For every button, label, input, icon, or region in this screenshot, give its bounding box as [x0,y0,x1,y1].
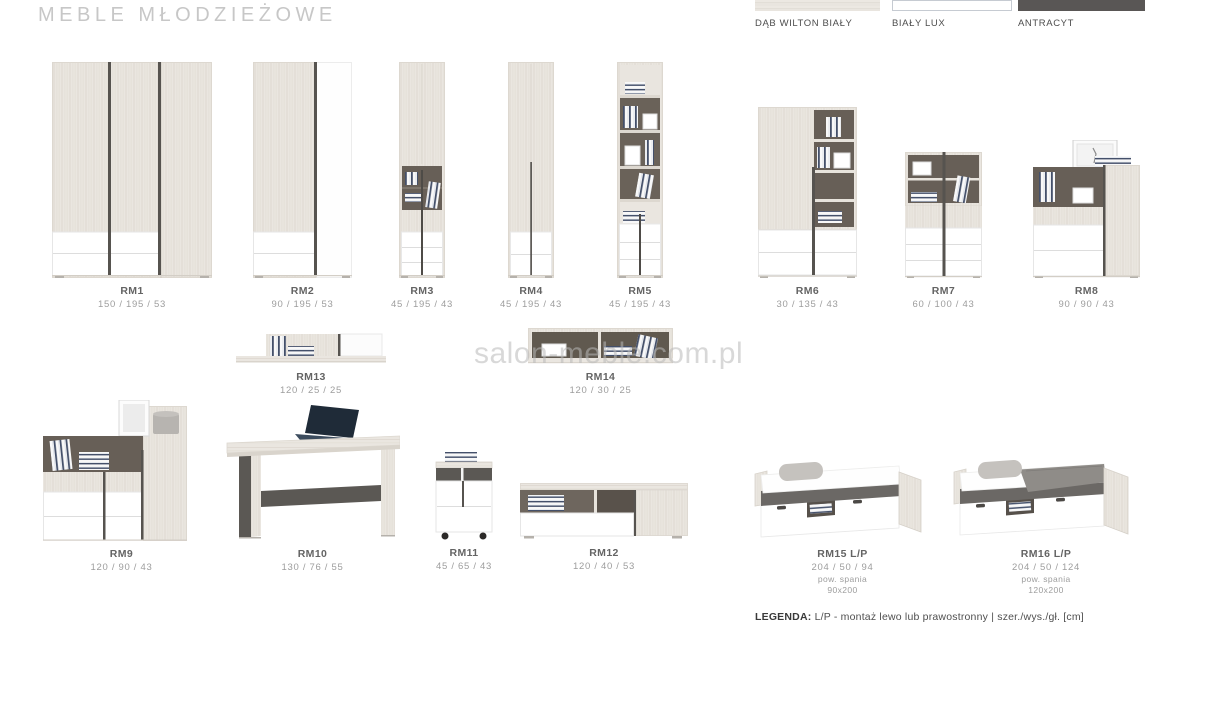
product-rm3: RM3 45 / 195 / 43 [399,62,445,311]
product-dims: 45 / 65 / 43 [436,560,492,573]
product-rm12: RM12 120 / 40 / 53 [520,483,688,573]
product-code: RM7 [913,285,975,298]
swatch-label: ANTRACYT [1018,18,1145,29]
product-image-rm10-desk [225,405,400,541]
product-image-rm9-chest [43,400,200,541]
product-image-rm3-cabinet [399,62,445,278]
product-code: RM5 [609,285,671,298]
product-code: RM1 [98,285,166,298]
product-dims: 45 / 195 / 43 [609,298,671,311]
product-code: RM12 [573,547,635,560]
product-image-rm1-wardrobe [52,62,212,278]
product-dims: 120 / 90 / 43 [91,561,153,574]
product-caption: RM14 120 / 30 / 25 [570,371,632,397]
legend: LEGENDA: L/P - montaż lewo lub prawostro… [755,611,1084,623]
product-dims: 45 / 195 / 43 [500,298,562,311]
product-caption: RM6 30 / 135 / 43 [777,285,839,311]
product-rm8: RM8 90 / 90 / 43 [1033,140,1140,311]
product-dims: 45 / 195 / 43 [391,298,453,311]
product-code: RM9 [91,548,153,561]
product-image-rm7-chest [905,152,982,278]
product-caption: RM10 130 / 76 / 55 [282,548,344,574]
product-caption: RM12 120 / 40 / 53 [573,547,635,573]
page-title: MEBLE MŁODZIEŻOWE [38,4,337,27]
product-dims: 150 / 195 / 53 [98,298,166,311]
product-rm11: RM11 45 / 65 / 43 [435,452,493,573]
product-caption: RM8 90 / 90 / 43 [1059,285,1115,311]
product-image-rm12-tv-stand [520,483,688,540]
product-code: RM13 [280,371,342,384]
product-rm7: RM7 60 / 100 / 43 [905,152,982,311]
product-image-rm15-bed [753,444,932,541]
product-caption: RM3 45 / 195 / 43 [391,285,453,311]
product-caption: RM7 60 / 100 / 43 [913,285,975,311]
product-rm1: RM1 150 / 195 / 53 [52,62,212,311]
product-rm9: RM9 120 / 90 / 43 [43,400,200,574]
product-dims: 120 / 30 / 25 [570,384,632,397]
product-code: RM2 [272,285,334,298]
product-dims: 30 / 135 / 43 [777,298,839,311]
product-caption: RM16 L/P 204 / 50 / 124 pow. spania 120x… [1012,548,1080,595]
product-code: RM14 [570,371,632,384]
product-rm5: RM5 45 / 195 / 43 [617,62,663,311]
product-code: RM4 [500,285,562,298]
product-caption: RM1 150 / 195 / 53 [98,285,166,311]
product-dims: 130 / 76 / 55 [282,561,344,574]
product-image-rm16-bed [952,444,1140,541]
product-caption: RM2 90 / 195 / 53 [272,285,334,311]
product-note-label: pow. spania [812,574,874,585]
product-caption: RM5 45 / 195 / 43 [609,285,671,311]
product-caption: RM11 45 / 65 / 43 [436,547,492,573]
product-rm15: RM15 L/P 204 / 50 / 94 pow. spania 90x20… [753,444,932,595]
legend-label: LEGENDA: [755,611,811,623]
finish-swatch-dab-wilton-bialy: DĄB WILTON BIAŁY [755,0,880,29]
product-rm10: RM10 130 / 76 / 55 [225,405,400,574]
product-code: RM8 [1059,285,1115,298]
product-code: RM15 L/P [812,548,874,561]
swatch-chip-wood [755,0,880,11]
swatch-chip-anthracite [1018,0,1145,11]
product-caption: RM15 L/P 204 / 50 / 94 pow. spania 90x20… [812,548,874,595]
product-code: RM16 L/P [1012,548,1080,561]
product-dims: 204 / 50 / 94 [812,561,874,574]
product-dims: 90 / 195 / 53 [272,298,334,311]
product-note-label: pow. spania [1012,574,1080,585]
finish-swatch-bialy-lux: BIAŁY LUX [892,0,1012,29]
product-dims: 60 / 100 / 43 [913,298,975,311]
product-code: RM10 [282,548,344,561]
product-rm2: RM2 90 / 195 / 53 [253,62,352,311]
swatch-label: DĄB WILTON BIAŁY [755,18,880,29]
swatch-chip-white [892,0,1012,11]
product-dims: 120 / 25 / 25 [280,384,342,397]
product-rm16: RM16 L/P 204 / 50 / 124 pow. spania 120x… [952,444,1140,595]
product-image-rm2-wardrobe [253,62,352,278]
product-caption: RM9 120 / 90 / 43 [91,548,153,574]
product-dims: 90 / 90 / 43 [1059,298,1115,311]
legend-text: L/P - montaż lewo lub prawostronny | sze… [815,611,1084,623]
product-dims: 120 / 40 / 53 [573,560,635,573]
product-note-size: 90x200 [812,585,874,596]
product-rm4: RM4 45 / 195 / 43 [508,62,554,311]
watermark: salon-meble.com.pl [474,337,743,371]
product-image-rm8-chest [1033,140,1140,278]
product-code: RM11 [436,547,492,560]
product-code: RM3 [391,285,453,298]
product-image-rm13-shelf [236,332,386,364]
product-code: RM6 [777,285,839,298]
product-image-rm5-bookcase [617,62,663,278]
product-note-size: 120x200 [1012,585,1080,596]
product-dims: 204 / 50 / 124 [1012,561,1080,574]
product-image-rm6-bookcase [758,107,857,278]
product-image-rm11-container [435,452,493,540]
product-caption: RM13 120 / 25 / 25 [280,371,342,397]
product-caption: RM4 45 / 195 / 43 [500,285,562,311]
finish-swatch-antracyt: ANTRACYT [1018,0,1145,29]
swatch-label: BIAŁY LUX [892,18,1012,29]
product-rm13: RM13 120 / 25 / 25 [236,332,386,397]
product-image-rm4-cabinet [508,62,554,278]
product-rm6: RM6 30 / 135 / 43 [758,107,857,311]
